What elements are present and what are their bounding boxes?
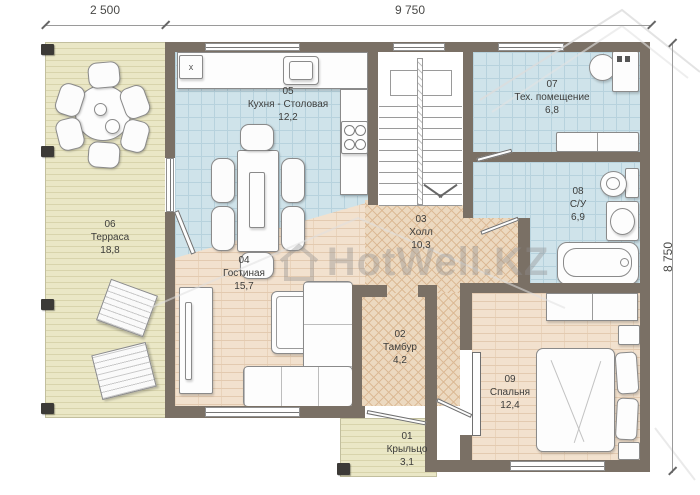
wall [362, 285, 387, 297]
terrace-table-detail [105, 119, 120, 134]
room-label-vestibule: 02 Тамбур 4,2 [360, 328, 440, 367]
room-label-terrace: 06 Терраса 18,8 [50, 218, 170, 257]
room-area: 12,2 [218, 111, 358, 124]
terrace-chair [87, 141, 121, 169]
blanket-fold [574, 361, 602, 443]
porch-post [337, 463, 350, 475]
bathroom-floor [473, 162, 530, 218]
kitchen-counter [177, 52, 368, 89]
tech-counter [556, 132, 639, 152]
dimension-label-top-main: 9 750 [340, 3, 480, 17]
wall [472, 283, 650, 293]
dining-table-detail [249, 172, 265, 228]
room-label-kitchen: 05 Кухня - Столовая 12,2 [218, 85, 358, 124]
dining-chair [281, 206, 305, 251]
dimension-label-top-left: 2 500 [55, 3, 155, 17]
wall [463, 52, 473, 218]
window [498, 43, 564, 51]
wall [518, 218, 530, 293]
toilet-tank [625, 168, 639, 198]
nightstand [618, 325, 640, 345]
room-label-living-room: 04 Гостиная 15,7 [184, 254, 304, 293]
room-number: 01 [357, 430, 457, 443]
window [205, 43, 300, 51]
room-number: 07 [492, 78, 612, 91]
wall [165, 42, 175, 158]
room-label-tech-room: 07 Тех. помещение 6,8 [492, 78, 612, 117]
room-area: 15,7 [184, 280, 304, 293]
room-label-bedroom: 09 Спальня 12,4 [460, 373, 560, 412]
room-name: Холл [381, 226, 461, 239]
dimension-line [165, 25, 652, 26]
room-label-hall: 03 Холл 10,3 [381, 213, 461, 252]
room-number: 09 [460, 373, 560, 386]
room-label-porch: 01 Крыльцо 3,1 [357, 430, 457, 469]
stove [341, 121, 368, 154]
room-name: Тех. помещение [492, 91, 612, 104]
pillow [615, 397, 639, 440]
sofa [243, 366, 353, 407]
window [205, 407, 300, 417]
dining-chair [281, 158, 305, 203]
terrace-post [41, 299, 54, 310]
wall [368, 52, 378, 205]
dining-chair [211, 206, 235, 251]
room-number: 06 [50, 218, 170, 231]
pillow [615, 351, 640, 394]
kitchen-appliance-box: x [179, 55, 203, 79]
room-number: 08 [538, 185, 618, 198]
room-number: 05 [218, 85, 358, 98]
room-area: 3,1 [357, 456, 457, 469]
room-area: 6,8 [492, 104, 612, 117]
wardrobe [546, 293, 638, 321]
room-area: 12,4 [460, 399, 560, 412]
terrace-post [41, 146, 54, 157]
wall [640, 42, 650, 472]
dining-chair [240, 124, 274, 151]
terrace-door-frame [166, 158, 174, 212]
room-name: Тамбур [360, 341, 440, 354]
bathtub [557, 242, 639, 285]
terrace-post [41, 44, 54, 55]
room-name: Терраса [50, 231, 170, 244]
room-number: 03 [381, 213, 461, 226]
terrace-chair [87, 61, 121, 90]
window [510, 461, 605, 471]
room-area: 4,2 [360, 354, 440, 367]
nightstand [618, 442, 640, 460]
room-name: Кухня - Столовая [218, 98, 358, 111]
room-area: 10,3 [381, 239, 461, 252]
staircase [378, 52, 463, 205]
terrace-table-detail [94, 103, 107, 116]
room-area: 18,8 [50, 244, 170, 257]
wall [460, 283, 472, 350]
tv [185, 302, 192, 380]
room-number: 02 [360, 328, 440, 341]
dimension-label-right: 8 750 [661, 227, 675, 287]
room-name: Спальня [460, 386, 560, 399]
kitchen-sink-basin [289, 61, 313, 80]
washing-machine [612, 51, 639, 92]
terrace-post [41, 403, 54, 414]
room-number: 04 [184, 254, 304, 267]
room-name: Крыльцо [357, 443, 457, 456]
room-name: С/У [538, 198, 618, 211]
window [393, 43, 445, 51]
dining-chair [211, 158, 235, 203]
room-name: Гостиная [184, 267, 304, 280]
room-area: 6,9 [538, 211, 618, 224]
dimension-line [45, 25, 165, 26]
floor-plan: 2 500 9 750 8 750 x [0, 0, 700, 495]
room-label-bathroom: 08 С/У 6,9 [538, 185, 618, 224]
hall-corridor-floor [437, 293, 460, 406]
